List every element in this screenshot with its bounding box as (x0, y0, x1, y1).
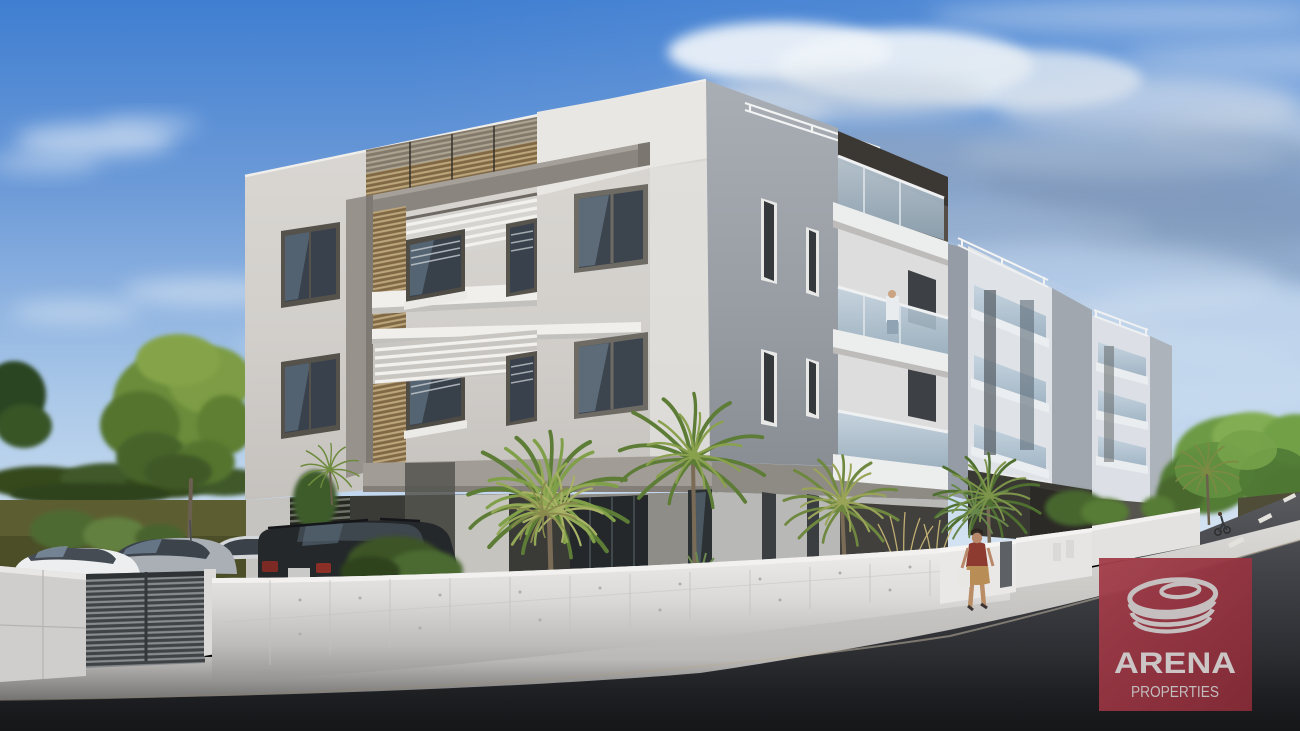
svg-text:PROPERTIES: PROPERTIES (1131, 684, 1219, 701)
svg-text:ARENA: ARENA (1114, 647, 1236, 680)
